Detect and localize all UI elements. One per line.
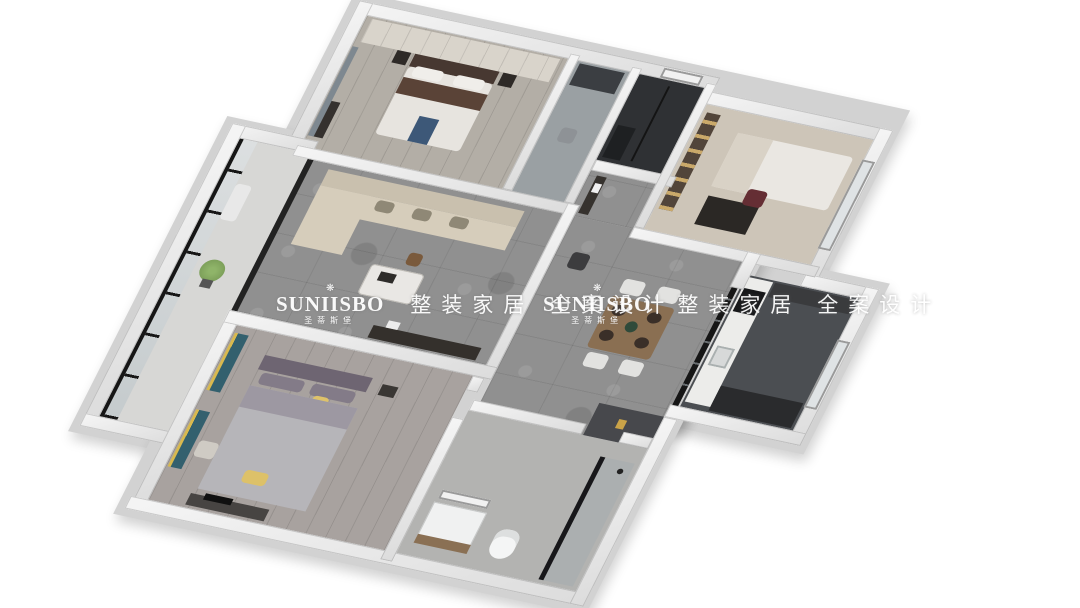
floor-plan-screenshot: ❋ SUNIISBO 圣蒂斯堡 整装家居 全案设计 ❋ SUNIISBO 圣蒂斯…	[0, 0, 1080, 608]
